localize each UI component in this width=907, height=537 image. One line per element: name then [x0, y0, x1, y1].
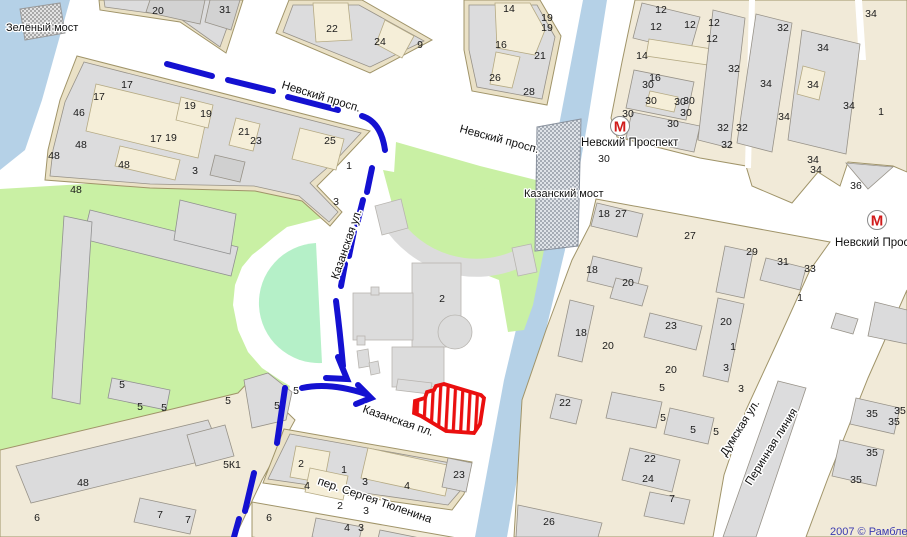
svg-text:1: 1: [730, 341, 736, 353]
svg-text:22: 22: [326, 23, 338, 35]
svg-text:31: 31: [219, 4, 231, 16]
svg-text:16: 16: [495, 39, 507, 51]
svg-text:20: 20: [602, 340, 614, 352]
svg-text:32: 32: [717, 122, 729, 134]
svg-text:5: 5: [659, 382, 665, 394]
svg-text:23: 23: [453, 469, 465, 481]
svg-text:35: 35: [888, 416, 900, 428]
svg-text:5: 5: [225, 395, 231, 407]
svg-text:5: 5: [660, 412, 666, 424]
svg-text:34: 34: [865, 8, 877, 20]
svg-text:Невский Проспект: Невский Проспект: [835, 237, 907, 249]
svg-text:12: 12: [708, 17, 720, 29]
svg-text:34: 34: [810, 164, 822, 176]
svg-text:30: 30: [667, 118, 679, 130]
svg-text:20: 20: [665, 364, 677, 376]
svg-text:17: 17: [121, 79, 133, 91]
svg-text:5: 5: [713, 426, 719, 438]
svg-text:1: 1: [346, 160, 352, 172]
svg-text:32: 32: [728, 63, 740, 75]
svg-text:М: М: [871, 213, 884, 230]
svg-text:7: 7: [185, 514, 191, 526]
svg-text:22: 22: [644, 453, 656, 465]
svg-text:3: 3: [363, 505, 369, 517]
svg-text:7: 7: [669, 493, 675, 505]
svg-text:21: 21: [534, 50, 546, 62]
svg-text:19: 19: [200, 108, 212, 120]
svg-text:2: 2: [298, 458, 304, 470]
svg-text:48: 48: [75, 139, 87, 151]
svg-text:48: 48: [70, 184, 82, 196]
svg-text:36: 36: [850, 180, 862, 192]
svg-text:32: 32: [736, 122, 748, 134]
svg-text:30: 30: [680, 107, 692, 119]
svg-text:14: 14: [636, 50, 648, 62]
svg-text:3: 3: [738, 383, 744, 395]
svg-text:34: 34: [843, 100, 855, 112]
svg-text:5: 5: [137, 401, 143, 413]
svg-text:20: 20: [152, 5, 164, 17]
svg-text:34: 34: [778, 111, 790, 123]
svg-text:5: 5: [161, 402, 167, 414]
svg-text:12: 12: [655, 4, 667, 16]
svg-text:2: 2: [439, 293, 445, 305]
svg-text:М: М: [614, 119, 627, 136]
svg-text:3: 3: [333, 196, 339, 208]
svg-text:4: 4: [344, 522, 350, 534]
svg-text:7: 7: [157, 509, 163, 521]
svg-text:48: 48: [77, 477, 89, 489]
svg-text:30: 30: [598, 153, 610, 165]
svg-text:34: 34: [760, 78, 772, 90]
svg-text:26: 26: [489, 72, 501, 84]
svg-text:32: 32: [777, 22, 789, 34]
svg-text:18: 18: [575, 327, 587, 339]
svg-text:2007 © Рамблер: 2007 © Рамблер: [830, 526, 907, 537]
svg-text:21: 21: [238, 126, 250, 138]
svg-text:12: 12: [706, 33, 718, 45]
svg-text:2: 2: [337, 500, 343, 512]
svg-text:34: 34: [817, 42, 829, 54]
svg-text:17: 17: [93, 91, 105, 103]
svg-text:12: 12: [684, 19, 696, 31]
svg-text:29: 29: [746, 246, 758, 258]
svg-text:18: 18: [586, 264, 598, 276]
svg-text:3: 3: [192, 165, 198, 177]
svg-text:30: 30: [642, 79, 654, 91]
svg-text:20: 20: [622, 277, 634, 289]
svg-text:34: 34: [807, 79, 819, 91]
svg-text:4: 4: [304, 480, 310, 492]
svg-text:35: 35: [866, 408, 878, 420]
svg-text:Казанский мост: Казанский мост: [524, 188, 604, 200]
svg-text:33: 33: [804, 263, 816, 275]
svg-text:6: 6: [34, 512, 40, 524]
svg-text:1: 1: [341, 464, 347, 476]
svg-text:25: 25: [324, 135, 336, 147]
svg-text:30: 30: [645, 95, 657, 107]
svg-text:3: 3: [362, 476, 368, 488]
svg-text:24: 24: [642, 473, 654, 485]
svg-text:9: 9: [417, 39, 423, 51]
svg-text:46: 46: [73, 107, 85, 119]
svg-text:48: 48: [48, 150, 60, 162]
svg-text:5: 5: [293, 385, 299, 397]
svg-text:23: 23: [250, 135, 262, 147]
svg-text:30: 30: [622, 108, 634, 120]
svg-text:20: 20: [720, 316, 732, 328]
svg-text:31: 31: [777, 256, 789, 268]
svg-text:35: 35: [850, 474, 862, 486]
svg-text:27: 27: [684, 230, 696, 242]
svg-text:4: 4: [404, 480, 410, 492]
svg-text:5: 5: [119, 379, 125, 391]
svg-text:3: 3: [723, 362, 729, 374]
svg-text:6: 6: [266, 512, 272, 524]
svg-text:5: 5: [274, 400, 280, 412]
svg-text:1: 1: [797, 292, 803, 304]
svg-text:5: 5: [690, 424, 696, 436]
svg-text:3: 3: [358, 522, 364, 534]
svg-text:Зелёный мост: Зелёный мост: [6, 22, 78, 34]
svg-text:1: 1: [878, 106, 884, 118]
svg-text:32: 32: [721, 139, 733, 151]
svg-text:27: 27: [615, 208, 627, 220]
svg-text:35: 35: [866, 447, 878, 459]
svg-text:Невский Проспект: Невский Проспект: [581, 137, 679, 149]
svg-text:19: 19: [184, 100, 196, 112]
svg-text:28: 28: [523, 86, 535, 98]
svg-text:12: 12: [650, 21, 662, 33]
svg-text:24: 24: [374, 36, 386, 48]
svg-text:48: 48: [118, 159, 130, 171]
svg-text:17: 17: [150, 133, 162, 145]
svg-text:23: 23: [665, 320, 677, 332]
svg-text:14: 14: [503, 3, 515, 15]
svg-text:18: 18: [598, 208, 610, 220]
svg-text:30: 30: [683, 95, 695, 107]
svg-text:5К1: 5К1: [223, 459, 241, 471]
svg-text:19: 19: [541, 22, 553, 34]
svg-text:22: 22: [559, 397, 571, 409]
svg-text:19: 19: [165, 132, 177, 144]
svg-text:26: 26: [543, 516, 555, 528]
